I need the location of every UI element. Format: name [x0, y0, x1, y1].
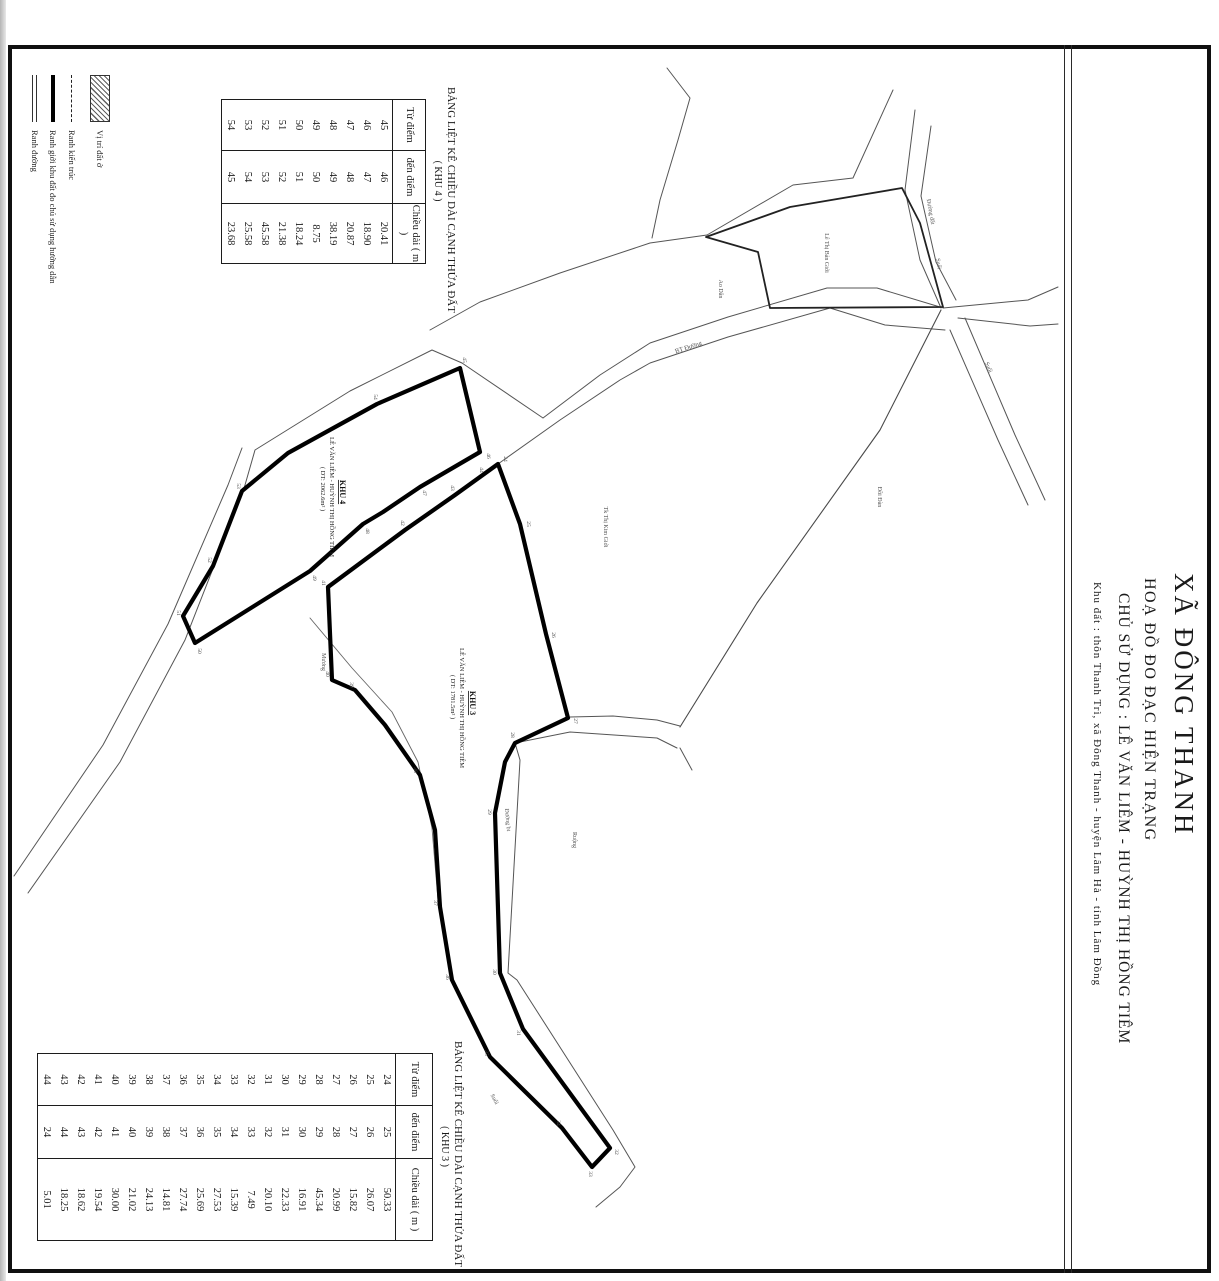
- table-cell: 52: [273, 151, 290, 204]
- table-cell: 33: [242, 1106, 259, 1159]
- table-row: 303122.33: [276, 1054, 293, 1241]
- column-header: Từ điểm: [396, 1054, 433, 1106]
- table-cell: 35: [191, 1054, 208, 1106]
- table-cell: 43: [55, 1054, 72, 1106]
- table-row: 525345.58: [256, 100, 273, 264]
- table-cell: 29: [293, 1054, 310, 1106]
- table-cell: 19.54: [89, 1159, 106, 1241]
- table-cell: 48: [324, 100, 341, 151]
- legend-label: Ranh đường: [30, 130, 40, 172]
- column-header: Từ điểm: [393, 100, 426, 151]
- table-cell: 18.24: [290, 204, 307, 264]
- table-cell: 20.87: [341, 204, 358, 264]
- table-row: 505118.24: [290, 100, 307, 264]
- table-cell: 40: [123, 1106, 140, 1159]
- table-row: 44245.01: [38, 1054, 56, 1241]
- length-table: Từ điểmđến điểmChiều dài ( m )454620.414…: [221, 99, 426, 264]
- table-subtitle: ( KHU 3 ): [438, 1053, 450, 1240]
- table-row: 363727.74: [174, 1054, 191, 1241]
- table-row: 49508.75: [307, 100, 324, 264]
- table-cell: 49: [324, 151, 341, 204]
- table-cell: 30: [276, 1054, 293, 1106]
- table-cell: 18.90: [358, 204, 375, 264]
- table-row: 262715.82: [344, 1054, 361, 1241]
- legend-item-architecture-boundary: Ranh kiến trúc: [67, 75, 77, 180]
- table-cell: 26: [344, 1054, 361, 1106]
- rotated-landscape-sheet: KHU 4LÊ VĂN LIÊM - HUỲNH THỊ HỒNG TIÊM( …: [0, 0, 1219, 1281]
- table-cell: 44: [55, 1106, 72, 1159]
- dashed-line-icon: [72, 75, 73, 122]
- table-cell: 37: [174, 1106, 191, 1159]
- table-cell: 20.99: [327, 1159, 344, 1241]
- table-cell: 25: [361, 1054, 378, 1106]
- table-cell: 31: [259, 1054, 276, 1106]
- table-row: 343527.53: [208, 1054, 225, 1241]
- table-cell: 41: [106, 1106, 123, 1159]
- thick-line-icon: [51, 75, 55, 122]
- table-row: 373814.81: [157, 1054, 174, 1241]
- table-cell: 26.07: [361, 1159, 378, 1241]
- table-row: 394021.02: [123, 1054, 140, 1241]
- table-cell: 25: [378, 1106, 396, 1159]
- legend-label: Ranh kiến trúc: [67, 130, 77, 180]
- title-separator-line: [1071, 45, 1072, 1273]
- table-cell: 15.82: [344, 1159, 361, 1241]
- table-cell: 21.38: [273, 204, 290, 264]
- table-row: 333415.39: [225, 1054, 242, 1241]
- table-row: 383924.13: [140, 1054, 157, 1241]
- length-table-khu3: BẢNG LIỆT KÊ CHIỀU DÀI CẠNH THỬA ĐẤT ( K…: [37, 1053, 464, 1240]
- map-type-title: HOẠ ĐỒ ĐO ĐẠC HIỆN TRẠNG: [1140, 578, 1158, 842]
- table-cell: 50: [290, 100, 307, 151]
- table-row: 535425.58: [239, 100, 256, 264]
- table-cell: 35: [208, 1106, 225, 1159]
- table-cell: 36: [174, 1054, 191, 1106]
- table-cell: 24: [378, 1054, 396, 1106]
- table-row: 252626.07: [361, 1054, 378, 1241]
- scanned-cadastral-map-page: { "title_block": { "line1": "XÃ ĐÔNG THA…: [0, 0, 1219, 1281]
- table-cell: 30: [293, 1106, 310, 1159]
- table-cell: 38: [157, 1106, 174, 1159]
- table-cell: 48: [341, 151, 358, 204]
- table-cell: 50: [307, 151, 324, 204]
- table-row: 282945.34: [310, 1054, 327, 1241]
- legend-item-road-boundary: Ranh đường: [30, 75, 40, 172]
- column-header: đến điểm: [393, 151, 426, 204]
- title-separator-line: [1064, 45, 1065, 1273]
- table-cell: 18.25: [55, 1159, 72, 1241]
- land-user-line: CHỦ SỬ DỤNG : LÊ VĂN LIÊM - HUỲNH THỊ HỒ…: [1114, 593, 1132, 1044]
- table-cell: 44: [38, 1054, 56, 1106]
- length-table-khu4: BẢNG LIỆT KÊ CHIỀU DÀI CẠNH THỬA ĐẤT ( K…: [221, 99, 457, 263]
- table-cell: 45.58: [256, 204, 273, 264]
- table-cell: 51: [273, 100, 290, 151]
- table-subtitle: ( KHU 4 ): [431, 99, 443, 263]
- double-line-icon: [33, 75, 38, 122]
- table-cell: 45.34: [310, 1159, 327, 1241]
- table-cell: 24.13: [140, 1159, 157, 1241]
- table-cell: 26: [361, 1106, 378, 1159]
- table-cell: 39: [123, 1054, 140, 1106]
- land-location-line: Khu đất : thôn Thanh Trì, xã Đông Thanh …: [1091, 582, 1103, 986]
- table-cell: 36: [191, 1106, 208, 1159]
- table-cell: 32: [242, 1054, 259, 1106]
- table-row: 515221.38: [273, 100, 290, 264]
- table-cell: 7.49: [242, 1159, 259, 1241]
- table-cell: 45: [375, 100, 393, 151]
- table-cell: 50.33: [378, 1159, 396, 1241]
- table-row: 544523.68: [222, 100, 240, 264]
- table-cell: 27: [327, 1054, 344, 1106]
- table-cell: 31: [276, 1106, 293, 1159]
- table-cell: 27: [344, 1106, 361, 1159]
- column-header: Chiều dài ( m ): [396, 1159, 433, 1241]
- table-cell: 28: [310, 1054, 327, 1106]
- table-cell: 38.19: [324, 204, 341, 264]
- table-cell: 16.91: [293, 1159, 310, 1241]
- table-cell: 27.53: [208, 1159, 225, 1241]
- table-cell: 33: [225, 1054, 242, 1106]
- table-cell: 34: [208, 1054, 225, 1106]
- table-cell: 54: [222, 100, 240, 151]
- table-cell: 29: [310, 1106, 327, 1159]
- table-cell: 27.74: [174, 1159, 191, 1241]
- legend-item-parcel-boundary: Ranh giới khu đất đo chủ sử dụng hướng d…: [48, 75, 58, 283]
- table-title: BẢNG LIỆT KÊ CHIỀU DÀI CẠNH THỬA ĐẤT: [443, 87, 457, 275]
- legend-item-residential: Vị trí đất ở: [90, 75, 110, 167]
- table-cell: 32: [259, 1106, 276, 1159]
- table-cell: 23.68: [222, 204, 240, 264]
- table-row: 434418.25: [55, 1054, 72, 1241]
- column-header: đến điểm: [396, 1106, 433, 1159]
- table-cell: 25.58: [239, 204, 256, 264]
- table-cell: 20.41: [375, 204, 393, 264]
- table-cell: 39: [140, 1106, 157, 1159]
- table-cell: 47: [358, 151, 375, 204]
- table-row: 242550.33: [378, 1054, 396, 1241]
- length-table: Từ điểmđến điểmChiều dài ( m )242550.332…: [37, 1053, 433, 1241]
- table-cell: 42: [89, 1106, 106, 1159]
- table-cell: 18.62: [72, 1159, 89, 1241]
- table-cell: 28: [327, 1106, 344, 1159]
- table-cell: 47: [341, 100, 358, 151]
- table-cell: 15.39: [225, 1159, 242, 1241]
- table-row: 313220.10: [259, 1054, 276, 1241]
- table-cell: 53: [239, 100, 256, 151]
- table-cell: 24: [38, 1106, 56, 1159]
- legend-label: Ranh giới khu đất đo chủ sử dụng hướng d…: [48, 130, 58, 283]
- table-cell: 49: [307, 100, 324, 151]
- table-cell: 5.01: [38, 1159, 56, 1241]
- table-row: 293016.91: [293, 1054, 310, 1241]
- table-cell: 46: [375, 151, 393, 204]
- table-cell: 52: [256, 100, 273, 151]
- table-cell: 45: [222, 151, 240, 204]
- table-row: 32337.49: [242, 1054, 259, 1241]
- column-header: Chiều dài ( m ): [393, 204, 426, 264]
- scan-edge-artifact: [0, 0, 6, 1281]
- table-cell: 30.00: [106, 1159, 123, 1241]
- table-cell: 38: [140, 1054, 157, 1106]
- table-row: 404130.00: [106, 1054, 123, 1241]
- table-title: BẢNG LIỆT KÊ CHIỀU DÀI CẠNH THỬA ĐẤT: [450, 1041, 464, 1252]
- table-cell: 51: [290, 151, 307, 204]
- table-cell: 14.81: [157, 1159, 174, 1241]
- table-cell: 20.10: [259, 1159, 276, 1241]
- table-row: 464718.90: [358, 100, 375, 264]
- table-row: 484938.19: [324, 100, 341, 264]
- table-row: 272820.99: [327, 1054, 344, 1241]
- table-cell: 8.75: [307, 204, 324, 264]
- table-row: 353625.69: [191, 1054, 208, 1241]
- table-row: 474820.87: [341, 100, 358, 264]
- table-cell: 34: [225, 1106, 242, 1159]
- table-cell: 54: [239, 151, 256, 204]
- table-row: 414219.54: [89, 1054, 106, 1241]
- hatch-swatch-icon: [90, 75, 110, 122]
- table-cell: 37: [157, 1054, 174, 1106]
- table-cell: 43: [72, 1106, 89, 1159]
- table-cell: 46: [358, 100, 375, 151]
- table-cell: 25.69: [191, 1159, 208, 1241]
- table-cell: 42: [72, 1054, 89, 1106]
- table-cell: 22.33: [276, 1159, 293, 1241]
- table-cell: 21.02: [123, 1159, 140, 1241]
- table-row: 424318.62: [72, 1054, 89, 1241]
- table-cell: 40: [106, 1054, 123, 1106]
- table-row: 454620.41: [375, 100, 393, 264]
- table-cell: 41: [89, 1054, 106, 1106]
- table-cell: 53: [256, 151, 273, 204]
- commune-title: XÃ ĐÔNG THANH: [1168, 573, 1199, 837]
- legend-label: Vị trí đất ở: [95, 130, 105, 167]
